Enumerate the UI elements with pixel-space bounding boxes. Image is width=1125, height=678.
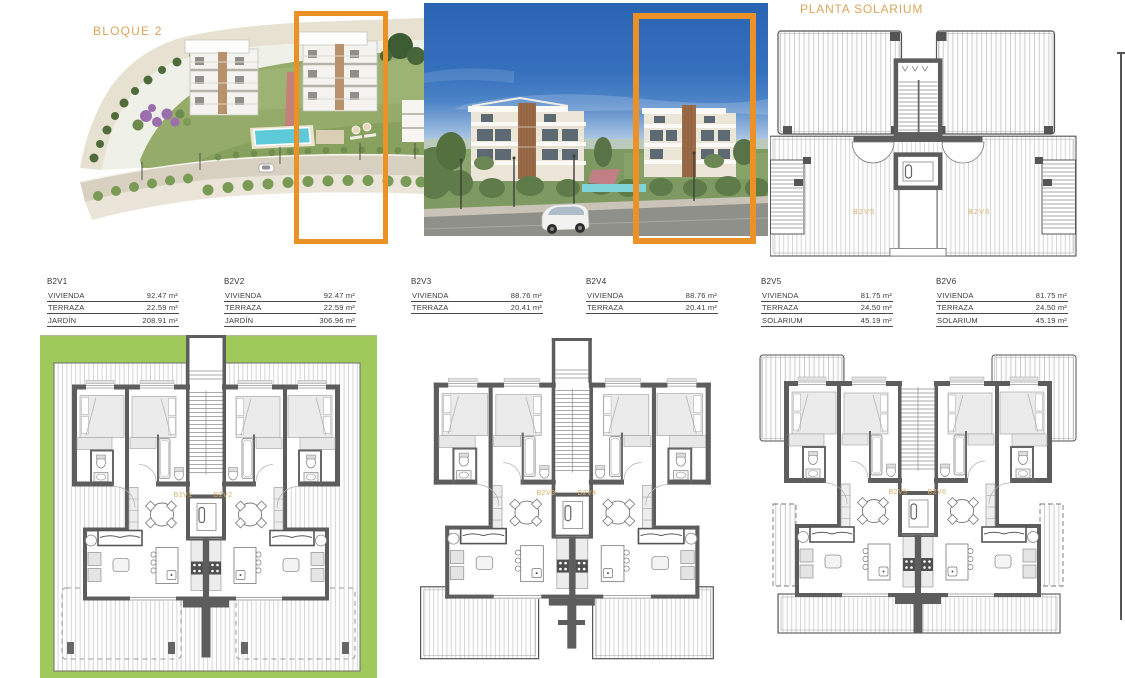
svg-text:B2V3: B2V3 (536, 490, 555, 497)
svg-text:B2V6: B2V6 (927, 489, 946, 496)
svg-text:B2V4: B2V4 (577, 490, 596, 497)
svg-text:B2V1: B2V1 (173, 492, 192, 499)
svg-text:B2V5: B2V5 (888, 489, 907, 496)
svg-text:B2V6: B2V6 (968, 207, 990, 216)
svg-text:B2V5: B2V5 (853, 207, 875, 216)
svg-text:B2V2: B2V2 (213, 492, 232, 499)
